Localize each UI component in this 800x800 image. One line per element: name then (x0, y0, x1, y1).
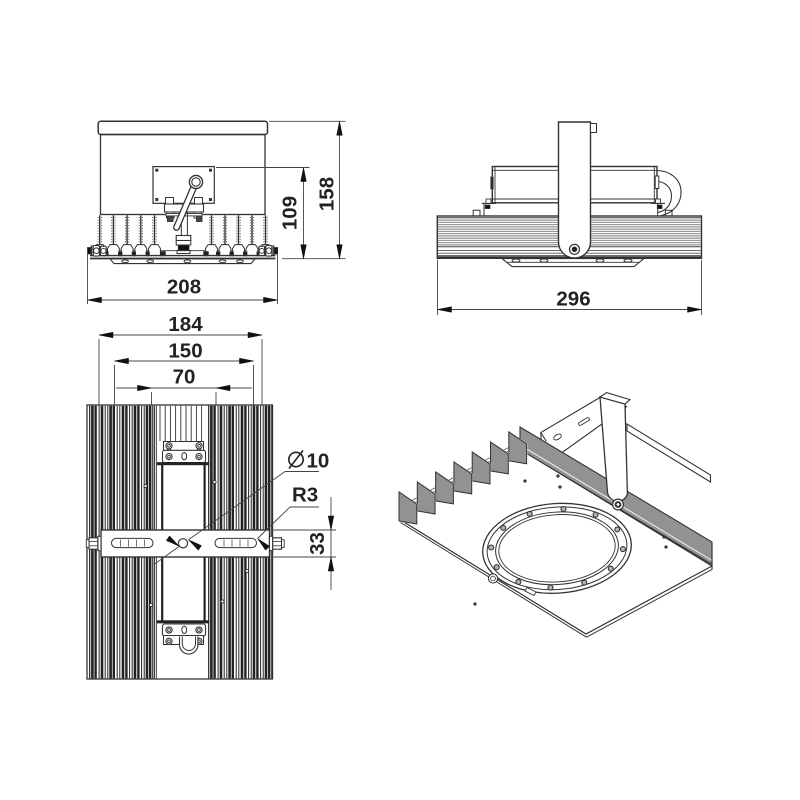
svg-text:184: 184 (168, 313, 203, 336)
svg-text:10: 10 (307, 450, 330, 473)
svg-text:33: 33 (306, 532, 329, 555)
svg-text:296: 296 (556, 288, 590, 311)
svg-text:R3: R3 (292, 484, 318, 507)
svg-text:150: 150 (168, 340, 202, 363)
svg-text:208: 208 (167, 276, 201, 299)
svg-text:109: 109 (279, 196, 302, 230)
svg-text:70: 70 (173, 366, 196, 389)
svg-text:158: 158 (316, 177, 339, 211)
